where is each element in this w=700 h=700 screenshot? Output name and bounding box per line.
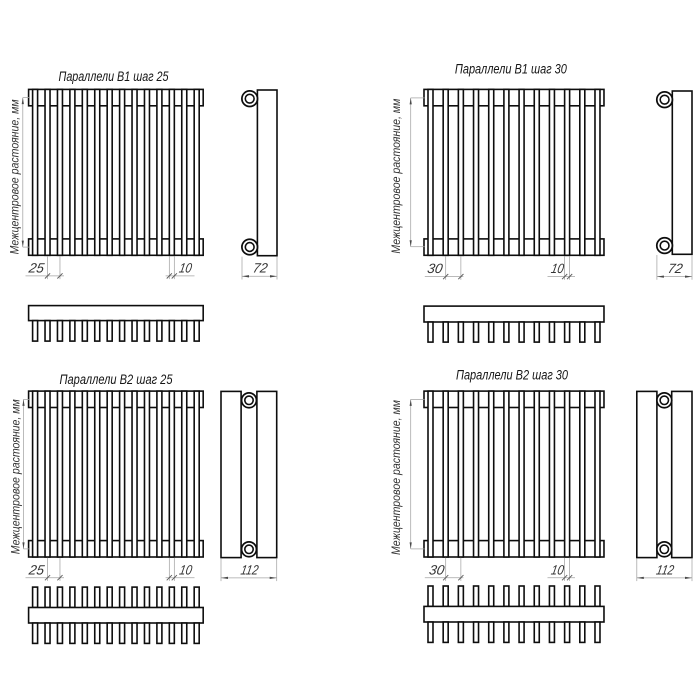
svg-text:25: 25	[27, 261, 46, 276]
svg-text:30: 30	[428, 562, 446, 577]
svg-text:Параллели В1 шаг 25: Параллели В1 шаг 25	[59, 69, 169, 84]
svg-text:Межцентровое растояние, мм: Межцентровое растояние, мм	[391, 98, 403, 253]
svg-text:Межцентровое растояние, мм: Межцентровое растояние, мм	[10, 399, 22, 554]
svg-text:112: 112	[655, 562, 675, 577]
svg-text:Межцентровое растояние, мм: Межцентровое растояние, мм	[391, 400, 403, 555]
svg-text:Параллели В1 шаг 30: Параллели В1 шаг 30	[455, 62, 567, 77]
svg-text:Параллели В2 шаг 30: Параллели В2 шаг 30	[456, 368, 568, 383]
svg-text:Межцентровое растояние, мм: Межцентровое растояние, мм	[10, 99, 22, 254]
svg-text:30: 30	[426, 261, 444, 276]
svg-text:112: 112	[240, 562, 260, 577]
svg-text:25: 25	[27, 562, 46, 577]
svg-text:Параллели В2 шаг 25: Параллели В2 шаг 25	[60, 372, 173, 387]
